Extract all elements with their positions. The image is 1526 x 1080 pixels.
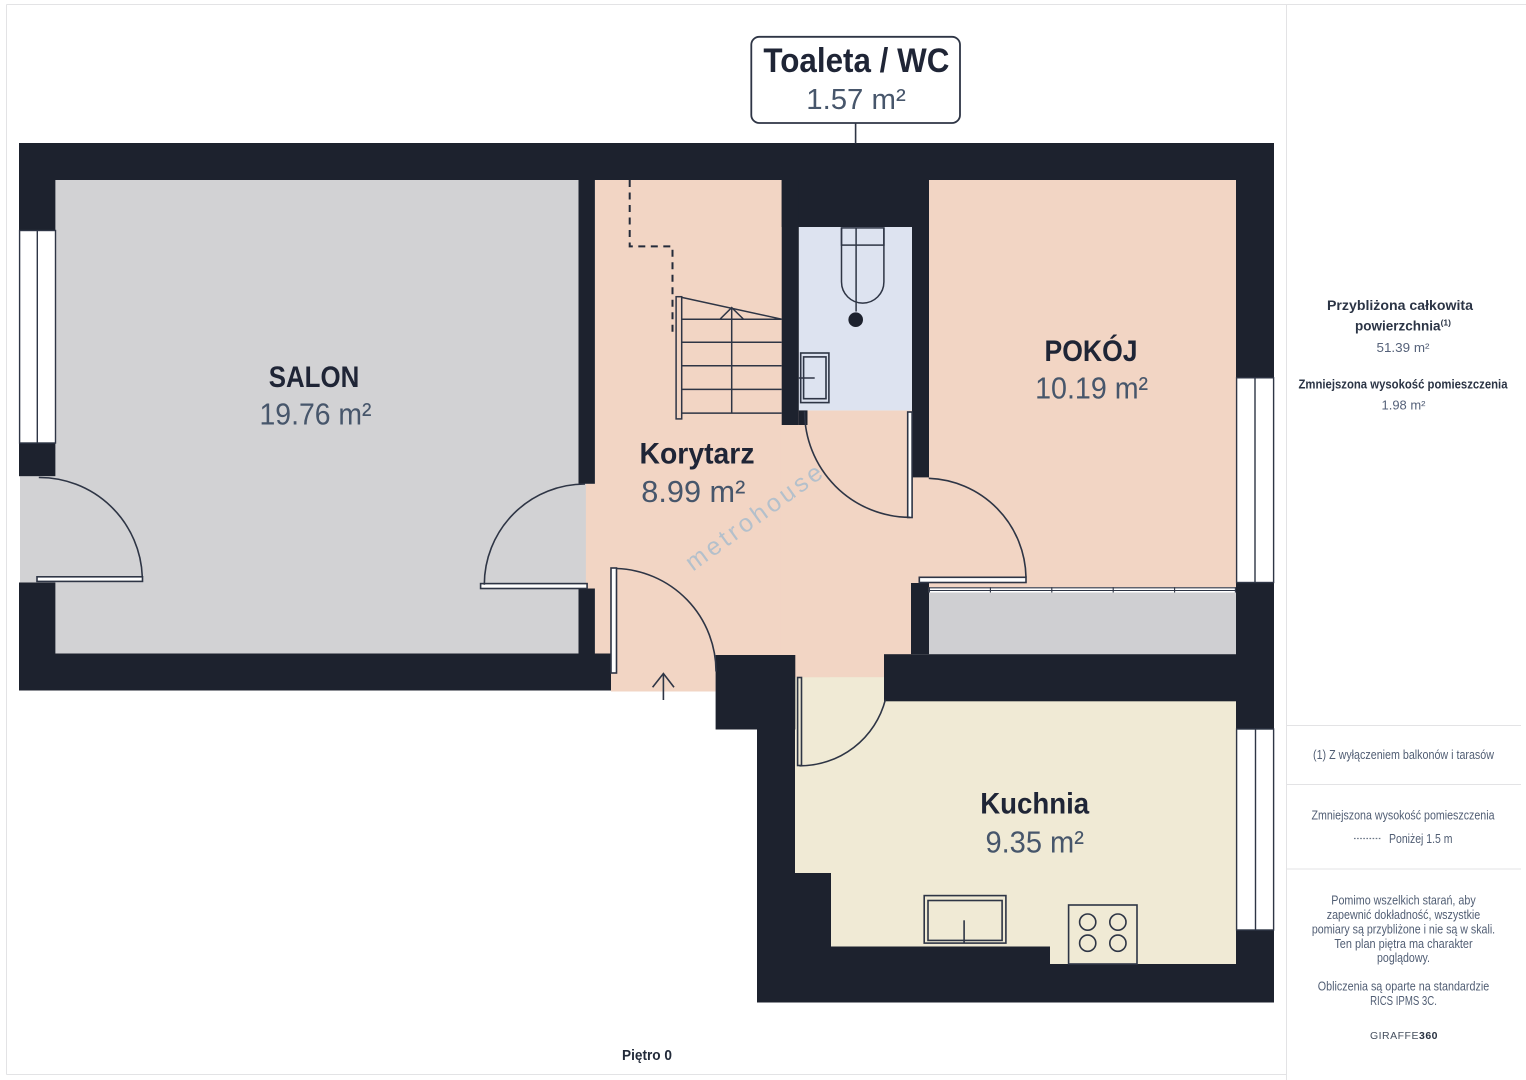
svg-text:GIRAFFE360: GIRAFFE360 bbox=[1370, 1030, 1438, 1042]
svg-text:9.35 m²: 9.35 m² bbox=[985, 825, 1084, 859]
svg-text:pomiary są przybliżone i nie s: pomiary są przybliżone i nie są w skali. bbox=[1312, 922, 1495, 936]
svg-text:19.76 m²: 19.76 m² bbox=[260, 397, 372, 431]
svg-text:Poniżej 1.5 m: Poniżej 1.5 m bbox=[1389, 832, 1453, 846]
svg-text:51.39 m²: 51.39 m² bbox=[1377, 340, 1431, 355]
svg-text:8.99 m²: 8.99 m² bbox=[641, 475, 745, 509]
svg-text:POKÓJ: POKÓJ bbox=[1045, 334, 1138, 368]
svg-text:1.98 m²: 1.98 m² bbox=[1382, 398, 1427, 413]
svg-text:poglądowy.: poglądowy. bbox=[1377, 951, 1430, 965]
svg-text:Pomimo wszelkich starań, aby: Pomimo wszelkich starań, aby bbox=[1331, 894, 1476, 908]
svg-text:SALON: SALON bbox=[269, 361, 360, 394]
svg-text:10.19 m²: 10.19 m² bbox=[1035, 372, 1148, 406]
svg-text:Piętro 0: Piętro 0 bbox=[622, 1048, 672, 1064]
svg-text:Kuchnia: Kuchnia bbox=[980, 788, 1089, 821]
svg-text:powierzchnia(1): powierzchnia(1) bbox=[1355, 318, 1451, 334]
svg-text:(1) Z wyłączeniem balkonów i t: (1) Z wyłączeniem balkonów i tarasów bbox=[1313, 748, 1495, 762]
svg-text:Korytarz: Korytarz bbox=[640, 438, 755, 471]
svg-text:Przybliżona całkowita: Przybliżona całkowita bbox=[1327, 298, 1474, 313]
svg-text:Zmniejszona wysokość pomieszcz: Zmniejszona wysokość pomieszczenia bbox=[1299, 377, 1509, 392]
svg-text:Ten plan piętra ma charakter: Ten plan piętra ma charakter bbox=[1334, 937, 1472, 951]
svg-text:Toaleta / WC: Toaleta / WC bbox=[763, 42, 949, 80]
svg-text:RICS IPMS 3C.: RICS IPMS 3C. bbox=[1370, 994, 1437, 1008]
svg-text:1.57 m²: 1.57 m² bbox=[806, 84, 906, 116]
svg-text:Obliczenia są oparte na standa: Obliczenia są oparte na standardzie bbox=[1318, 979, 1489, 993]
svg-text:Zmniejszona wysokość pomieszcz: Zmniejszona wysokość pomieszczenia bbox=[1312, 809, 1495, 823]
svg-text:zapewnić dokładność, wszystkie: zapewnić dokładność, wszystkie bbox=[1327, 908, 1481, 922]
